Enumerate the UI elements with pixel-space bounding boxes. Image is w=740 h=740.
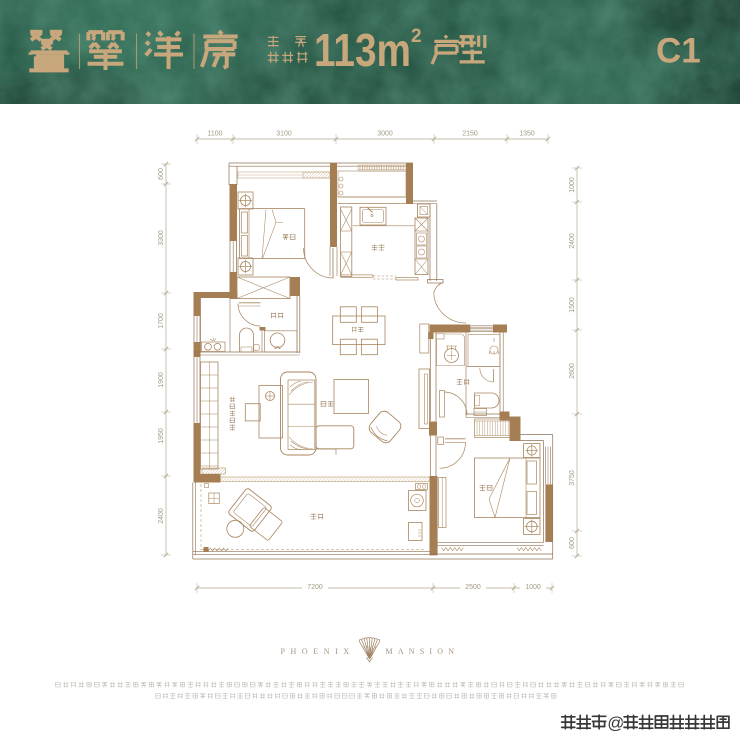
svg-text:MANSION: MANSION — [386, 647, 460, 656]
svg-text:PHOENIX: PHOENIX — [281, 647, 355, 656]
svg-text:1000: 1000 — [525, 584, 541, 591]
svg-text:1500: 1500 — [569, 297, 576, 313]
svg-text:3000: 3000 — [377, 131, 393, 138]
svg-text:3100: 3100 — [276, 131, 292, 138]
svg-text:600: 600 — [569, 537, 576, 549]
svg-text:1100: 1100 — [207, 131, 222, 138]
svg-text:2600: 2600 — [569, 363, 576, 379]
svg-text:2500: 2500 — [465, 584, 481, 591]
svg-text:2: 2 — [411, 26, 422, 47]
svg-text:113m: 113m — [314, 24, 411, 76]
svg-text:C1: C1 — [656, 32, 701, 71]
svg-text:2150: 2150 — [462, 131, 478, 138]
svg-text:2400: 2400 — [569, 233, 576, 249]
svg-text:2400: 2400 — [158, 508, 165, 524]
svg-text:1700: 1700 — [158, 313, 165, 329]
svg-text:7200: 7200 — [307, 584, 323, 591]
svg-text:@: @ — [607, 714, 624, 733]
svg-text:1000: 1000 — [569, 177, 576, 193]
svg-text:3300: 3300 — [158, 230, 165, 246]
svg-text:1950: 1950 — [158, 428, 165, 444]
svg-text:1350: 1350 — [519, 131, 535, 138]
svg-text:600: 600 — [158, 168, 165, 180]
svg-text:3750: 3750 — [569, 470, 576, 486]
svg-text:1900: 1900 — [158, 372, 165, 388]
